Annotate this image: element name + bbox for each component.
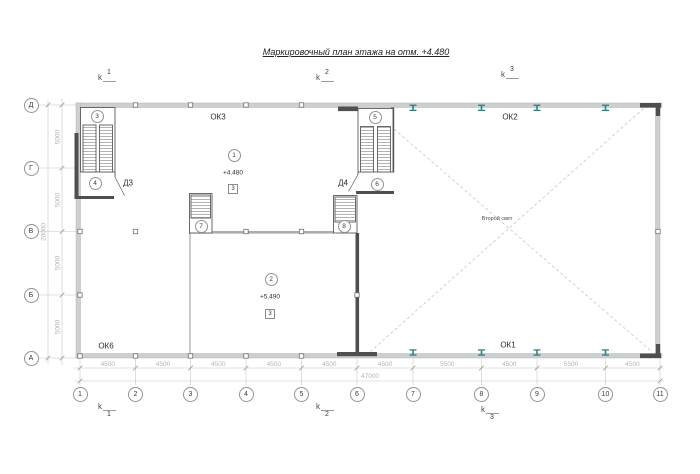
grid-row-bubble-d: Д — [24, 98, 39, 113]
grid-col-bubble-5: 5 — [294, 387, 309, 402]
grid-col-bubble-6: 6 — [350, 387, 365, 402]
section-mark-line — [506, 78, 519, 79]
grid-col-bubble-8: 8 — [474, 387, 489, 402]
dim-label: 4500 — [156, 361, 170, 368]
dim-label: 5000 — [54, 319, 61, 333]
grid-col-bubble-11: 11 — [653, 387, 668, 402]
room-number-bubble: 1 — [228, 149, 241, 162]
dim-total-label: 20000 — [40, 222, 47, 240]
interior-walls — [189, 231, 334, 354]
section-mark-number: 1 — [107, 411, 111, 418]
stair-number-bubble: 3 — [91, 110, 104, 123]
dim-label: 4500 — [211, 361, 225, 368]
section-mark-number: 1 — [107, 69, 111, 76]
room-elevation: +4.480 — [223, 170, 243, 177]
grid-col-bubble-9: 9 — [530, 387, 545, 402]
door-label-d4: Д4 — [338, 179, 348, 188]
dimension-ticks — [46, 103, 663, 384]
second-light-note: Второй свет — [482, 216, 513, 222]
dim-label: 5000 — [54, 256, 61, 270]
floor-plan-canvas: Маркировочный план этажа на отм. +4.480 … — [0, 0, 700, 474]
ibeam-column-icons — [410, 105, 610, 356]
section-mark-letter: k — [316, 402, 320, 411]
dim-label: 5500 — [564, 361, 578, 368]
stair-number-bubble: 6 — [371, 178, 384, 191]
opening-label-ok6: ОК6 — [98, 342, 113, 351]
grid-row-bubble-a: А — [24, 351, 39, 366]
opening-label-ok2: ОК2 — [502, 113, 517, 122]
stair-number-bubble: 8 — [338, 220, 351, 233]
dim-label: 4500 — [322, 361, 336, 368]
section-mark-3-top: k 3 — [501, 67, 523, 85]
dimension-lines — [38, 98, 664, 385]
section-mark-number: 3 — [490, 414, 494, 421]
room-elevation: +5.490 — [260, 294, 280, 301]
section-mark-letter: k — [98, 402, 102, 411]
dim-label: 5000 — [54, 193, 61, 207]
dim-label: 4500 — [378, 361, 392, 368]
grid-row-bubble-b: Б — [24, 288, 39, 303]
section-mark-letter: k — [98, 73, 102, 82]
grid-col-bubble-1: 1 — [73, 387, 88, 402]
grid-row-bubble-g: Г — [24, 161, 39, 176]
dim-label: 4500 — [267, 361, 281, 368]
grid-row-bubble-v: В — [24, 224, 39, 239]
room-number-bubble: 2 — [265, 273, 278, 286]
room-type-mark: 3 — [265, 309, 275, 319]
stairwell-d3 — [81, 108, 125, 196]
opening-label-ok3: ОК3 — [210, 113, 225, 122]
stair-number-bubble: 4 — [89, 177, 102, 190]
dim-total-label: 47000 — [361, 373, 379, 380]
section-mark-number: 2 — [325, 411, 329, 418]
drawing-title: Маркировочный план этажа на отм. +4.480 — [263, 47, 450, 57]
section-mark-line — [103, 81, 116, 82]
section-mark-3-bottom: k 3 — [481, 405, 503, 423]
section-mark-line — [321, 81, 334, 82]
grid-col-bubble-10: 10 — [598, 387, 613, 402]
dim-label: 4500 — [101, 361, 115, 368]
dim-label: 5000 — [54, 129, 61, 143]
section-mark-number: 2 — [325, 69, 329, 76]
dim-label: 4500 — [502, 361, 516, 368]
second-light-dashes — [371, 109, 652, 352]
grid-col-bubble-3: 3 — [183, 387, 198, 402]
section-mark-number: 3 — [510, 66, 514, 73]
stair-number-bubble: 7 — [195, 220, 208, 233]
section-mark-1-bottom: k 1 — [98, 402, 120, 420]
dim-label: 5500 — [440, 361, 454, 368]
dim-label: 4500 — [625, 361, 639, 368]
opening-label-ok1: ОК1 — [500, 341, 515, 350]
section-mark-1-top: k 1 — [98, 70, 120, 88]
stair-number-bubble: 5 — [369, 111, 382, 124]
section-mark-letter: k — [501, 70, 505, 79]
grid-col-bubble-7: 7 — [406, 387, 421, 402]
section-mark-2-bottom: k 2 — [316, 402, 338, 420]
section-mark-letter: k — [316, 73, 320, 82]
section-mark-letter: k — [481, 405, 485, 414]
room-type-mark: 3 — [228, 184, 238, 194]
section-mark-2-top: k 2 — [316, 70, 338, 88]
grid-col-bubble-2: 2 — [128, 387, 143, 402]
door-label-d3: Д3 — [123, 179, 133, 188]
grid-col-bubble-4: 4 — [239, 387, 254, 402]
